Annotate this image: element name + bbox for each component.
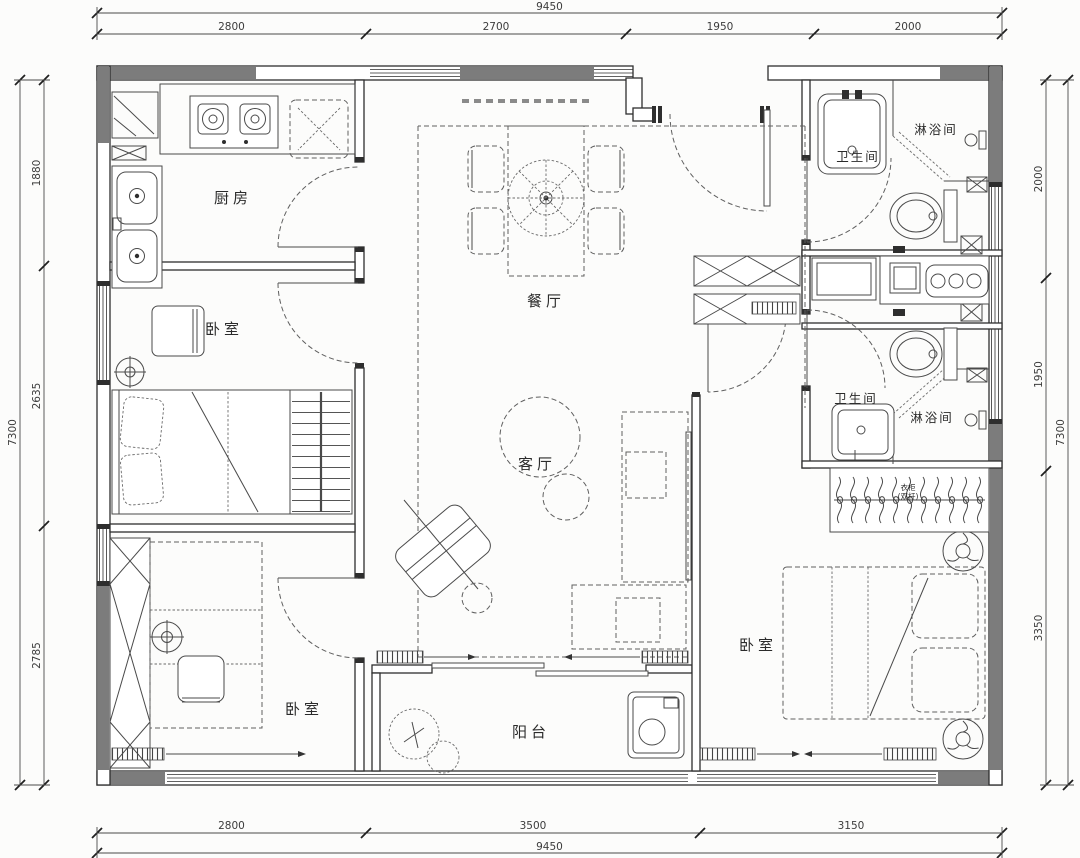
door-swing-arc bbox=[278, 578, 358, 658]
dim-left-total: 7300 bbox=[7, 419, 19, 446]
shear-wall bbox=[108, 67, 256, 79]
dim-right-segment-1: 1950 bbox=[1033, 361, 1045, 388]
shower-head-icon bbox=[965, 411, 986, 429]
heater-icon bbox=[112, 748, 164, 760]
shear-wall bbox=[460, 67, 594, 79]
kitchen-area bbox=[112, 84, 355, 288]
wall-balcony-side bbox=[372, 673, 380, 771]
room-label-shower: 淋浴间 bbox=[910, 410, 954, 425]
shear-wall bbox=[98, 67, 109, 143]
room-label-master-bedroom: 卧室 bbox=[739, 636, 777, 654]
door-jamb bbox=[355, 363, 364, 368]
closet-label: (双杆) bbox=[898, 491, 919, 501]
floor-drain-icon bbox=[961, 303, 982, 321]
window-cap bbox=[97, 581, 110, 586]
heater-icon bbox=[884, 748, 936, 760]
room-label-dining: 餐厅 bbox=[527, 292, 565, 310]
zone-outline bbox=[418, 126, 805, 657]
dim-left-segment-1: 2635 bbox=[31, 383, 43, 410]
room-label-bedroom: 卧室 bbox=[285, 700, 323, 718]
dim-right-segment-0: 2000 bbox=[1033, 166, 1045, 193]
floor-plan-canvas: 厨房 卧室 卧室 餐厅 客厅 阳台 卧室 卫生间 淋浴间 卫生间 淋浴间 衣柜 … bbox=[0, 0, 1080, 858]
pillow-icon bbox=[912, 574, 978, 638]
plant-icon bbox=[427, 741, 459, 773]
faucet-icon bbox=[893, 246, 905, 253]
faucet-icon bbox=[893, 309, 905, 316]
desk-chair-icon bbox=[152, 306, 204, 356]
closet-label: 衣柜 bbox=[901, 482, 916, 492]
shoe-cabinet-icon bbox=[694, 256, 800, 324]
ceiling-fan-icon bbox=[943, 531, 983, 571]
master-bedroom-area bbox=[783, 531, 985, 759]
door-jamb bbox=[355, 278, 364, 283]
furniture-layer bbox=[110, 84, 989, 773]
entry-door-frame bbox=[658, 106, 662, 123]
entry-door-leaf bbox=[764, 110, 770, 206]
bed-icon bbox=[783, 567, 985, 719]
living-area bbox=[392, 397, 691, 649]
room-label-living: 客厅 bbox=[518, 455, 556, 473]
ceiling-fan-icon bbox=[943, 719, 983, 759]
door-jamb bbox=[802, 386, 810, 391]
heater-arrow bbox=[468, 654, 476, 660]
shear-wall bbox=[98, 584, 109, 770]
door-swing-arc bbox=[670, 114, 767, 211]
entry-door-frame bbox=[760, 106, 764, 123]
wall-balcony bbox=[372, 665, 432, 673]
dining-chair-icon bbox=[588, 208, 624, 254]
plant-icon bbox=[389, 709, 439, 759]
tv-cabinet-icon bbox=[622, 412, 688, 582]
door-swing-arc bbox=[278, 283, 358, 363]
floor-drain-icon bbox=[967, 177, 987, 192]
desk-chair-icon bbox=[178, 656, 224, 702]
dining-area bbox=[418, 126, 805, 657]
sink-drain bbox=[135, 194, 139, 198]
dim-top-segment-2: 1950 bbox=[707, 21, 734, 33]
room-label-balcony: 阳台 bbox=[512, 723, 550, 741]
door-swing-arc bbox=[807, 310, 885, 388]
dim-top-segment-0: 2800 bbox=[218, 21, 245, 33]
dim-left-segment-0: 1880 bbox=[31, 160, 43, 187]
cabinet-icon bbox=[112, 146, 146, 160]
room-label-bathroom: 卫生间 bbox=[834, 391, 878, 406]
dim-bottom-segment-2: 3150 bbox=[838, 820, 865, 832]
fridge-icon bbox=[298, 108, 340, 150]
toilet-icon bbox=[890, 190, 957, 242]
room-label-kitchen: 厨房 bbox=[214, 189, 252, 207]
wall-interior bbox=[355, 247, 364, 283]
wall-vanity-left bbox=[802, 252, 810, 314]
cabinet-icon bbox=[572, 585, 686, 649]
wall-master-left bbox=[692, 395, 700, 771]
dining-chair-icon bbox=[588, 146, 624, 192]
ceiling-fan-icon bbox=[114, 356, 146, 388]
room-label-bathroom: 卫生间 bbox=[836, 149, 880, 164]
heater-arrow bbox=[804, 751, 812, 757]
door-swing-arc bbox=[708, 314, 786, 392]
wall-bath2-left bbox=[802, 386, 810, 468]
wall-bedroom-bedroom bbox=[110, 524, 355, 532]
room-label-shower: 淋浴间 bbox=[914, 122, 958, 137]
bathroom-top-area bbox=[818, 90, 987, 254]
dining-chair-icon bbox=[468, 208, 504, 254]
chandelier-icon bbox=[508, 160, 584, 236]
kitchen-sink-icon bbox=[112, 166, 162, 288]
heater-arrow bbox=[792, 751, 800, 757]
bed-icon bbox=[832, 567, 868, 719]
dim-top-segment-1: 2700 bbox=[483, 21, 510, 33]
faucet-icon bbox=[842, 90, 849, 99]
faucet-icon bbox=[855, 90, 862, 99]
corner-cabinet-icon bbox=[114, 96, 154, 136]
room-label-bedroom: 卧室 bbox=[205, 320, 243, 338]
window-cap bbox=[97, 380, 110, 385]
dining-chair-icon bbox=[468, 146, 504, 192]
dim-top-total: 9450 bbox=[536, 1, 563, 13]
pillow-icon bbox=[912, 648, 978, 712]
washbasin-icon bbox=[832, 404, 894, 460]
shear-wall bbox=[990, 67, 1001, 187]
cabinet-icon bbox=[812, 258, 876, 300]
door-jamb bbox=[355, 658, 364, 663]
plant-icon bbox=[404, 722, 424, 748]
floor-plan-page: 厨房 卧室 卧室 餐厅 客厅 阳台 卧室 卫生间 淋浴间 卫生间 淋浴间 衣柜 … bbox=[0, 0, 1080, 858]
dim-bottom-segment-1: 3500 bbox=[520, 820, 547, 832]
cabinet-icon bbox=[616, 598, 660, 642]
window-cap bbox=[97, 524, 110, 529]
sliding-door-panel bbox=[432, 663, 544, 668]
door-jamb bbox=[355, 157, 364, 162]
heater-arrow bbox=[298, 751, 306, 757]
sink-drain bbox=[135, 254, 139, 258]
stove-knob bbox=[244, 140, 248, 144]
door-jamb bbox=[802, 240, 810, 245]
wall-vanity-bottom bbox=[802, 323, 1002, 329]
wall-interior bbox=[355, 368, 364, 578]
washing-machine-icon bbox=[628, 692, 684, 758]
window-cap bbox=[989, 419, 1002, 424]
door-jamb bbox=[355, 247, 364, 252]
wall-bath-left bbox=[802, 80, 810, 160]
sliding-door-panel bbox=[536, 671, 648, 676]
wall-balcony bbox=[646, 665, 692, 673]
window-cap bbox=[97, 281, 110, 286]
dim-bottom-segment-0: 2800 bbox=[218, 820, 245, 832]
entry-door-frame bbox=[652, 106, 656, 123]
wall-bath2-bottom bbox=[802, 461, 1002, 468]
bed-icon bbox=[870, 578, 928, 716]
shear-wall bbox=[990, 420, 1001, 770]
wall-interior bbox=[355, 658, 364, 771]
heater-icon bbox=[700, 748, 755, 760]
shower-head-icon bbox=[965, 131, 986, 149]
heater-icon bbox=[642, 651, 688, 663]
toilet-icon bbox=[890, 328, 957, 380]
door-jamb bbox=[355, 573, 364, 578]
dim-right-segment-2: 3350 bbox=[1033, 615, 1045, 642]
dim-top-segment-3: 2000 bbox=[895, 21, 922, 33]
stove-knob bbox=[222, 140, 226, 144]
shower-door-icon bbox=[893, 132, 950, 181]
heater-icon bbox=[377, 651, 423, 663]
heater-arrow bbox=[564, 654, 572, 660]
bedroom-bottom-area bbox=[110, 538, 262, 768]
floor-drain-icon bbox=[967, 368, 987, 382]
ceiling-fan-icon bbox=[150, 620, 184, 654]
dim-right-total: 7300 bbox=[1055, 419, 1067, 446]
dim-bottom-total: 9450 bbox=[536, 841, 563, 853]
rug-circle-icon bbox=[543, 474, 589, 520]
door-jamb bbox=[692, 392, 700, 397]
dim-left-segment-2: 2785 bbox=[31, 642, 43, 669]
tv-cabinet-icon bbox=[626, 452, 666, 498]
wall-entry-stub bbox=[633, 108, 655, 121]
window-cap bbox=[989, 182, 1002, 187]
door-jamb bbox=[802, 155, 810, 160]
door-swing-arc bbox=[278, 167, 358, 247]
wall-interior bbox=[355, 80, 364, 162]
sofa-chair-icon bbox=[392, 501, 495, 601]
